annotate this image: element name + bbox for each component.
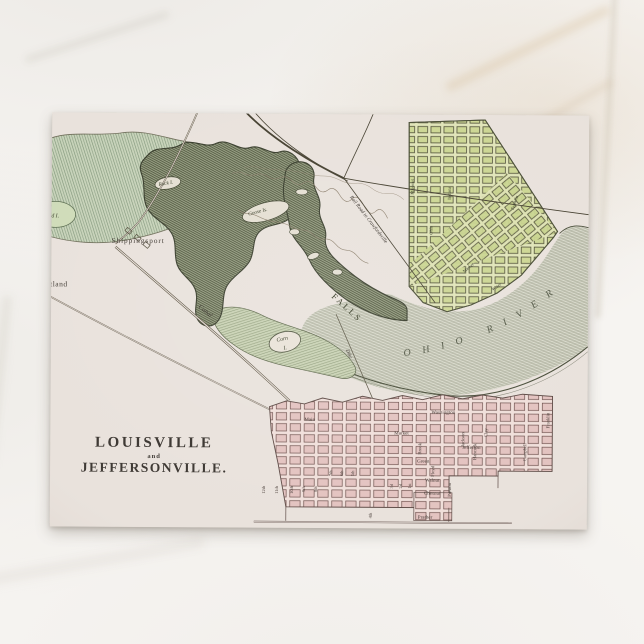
street-label: 6th	[339, 470, 344, 476]
street-label: 8th	[313, 486, 318, 492]
street-label: 4th	[368, 512, 373, 518]
street-label: Jackson	[460, 432, 465, 447]
title-line1: LOUISVILLE	[95, 435, 213, 452]
street-label: Green	[417, 460, 430, 465]
street-label: Indiana	[447, 187, 452, 200]
marble-vein	[0, 296, 12, 466]
marble-vein	[445, 5, 611, 92]
street-label: 9th	[301, 485, 306, 491]
shippingsport-label: Shippingsport	[111, 237, 164, 245]
marble-vein	[595, 0, 617, 318]
street-label: Clay	[483, 428, 488, 437]
street-label: Missouri	[410, 178, 415, 194]
sand-island-label: Sand I.	[50, 213, 59, 219]
street-label: Ohio	[429, 225, 434, 235]
street-label: 7th	[328, 470, 333, 476]
street-label: Walnut	[425, 479, 440, 484]
marble-vein	[0, 537, 205, 585]
street-label: Washington	[431, 411, 455, 416]
marble-vein	[25, 11, 170, 63]
antique-map: OHIO RIVER FALLS Canal Dike Rail Road to…	[50, 112, 590, 529]
street-label: Chesnut	[424, 492, 441, 497]
portland-label: Portland	[50, 279, 68, 288]
street-label: Floyd	[430, 465, 435, 476]
street-label: 11th	[274, 485, 279, 493]
street-label: Main	[304, 418, 315, 423]
street-label: 1st	[407, 483, 412, 489]
street-label: 5th	[350, 470, 355, 476]
street-label: Franklin	[545, 412, 550, 428]
marble-background: { "postcard": { "title": { "line1": "LOU…	[0, 0, 644, 644]
street-label: Campbell	[522, 443, 527, 462]
street-label: 12th	[261, 485, 266, 494]
street-label: Prather	[418, 516, 433, 521]
street-label: 10th	[289, 485, 294, 494]
street-label: Brook	[417, 442, 422, 454]
street-label: Hancock	[472, 443, 477, 460]
postcard: OHIO RIVER FALLS Canal Dike Rail Road to…	[50, 112, 590, 529]
street-label: Market	[394, 431, 409, 436]
street-label: Preston	[447, 482, 452, 497]
title-line3: JEFFERSONVILLE.	[81, 460, 228, 476]
